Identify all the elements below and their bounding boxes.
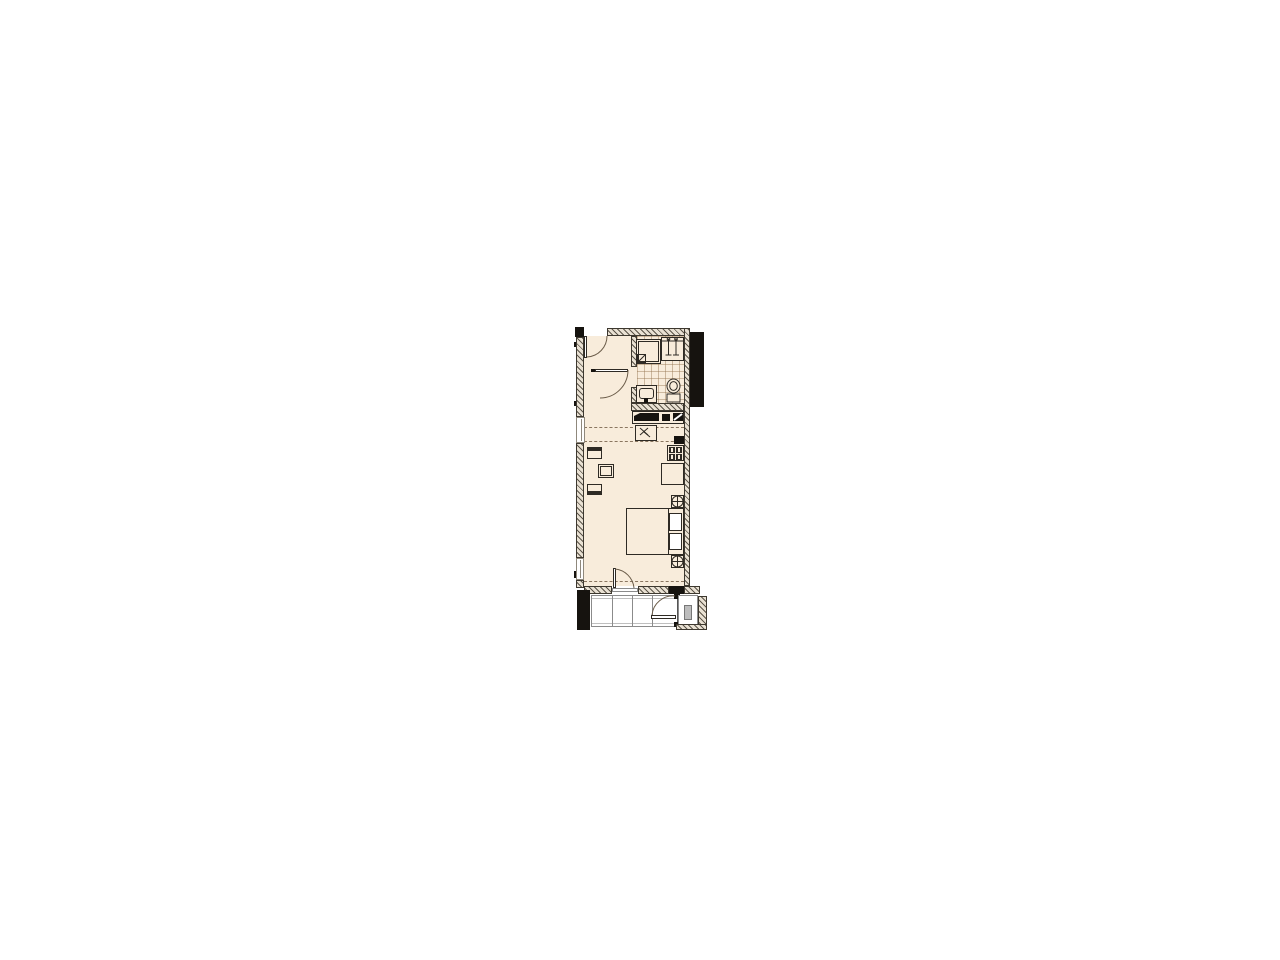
service-duct [632, 411, 684, 424]
floor-plan [574, 324, 708, 636]
utility-box [684, 605, 692, 620]
burner-2 [676, 447, 682, 453]
dashed-line-window-wall [584, 581, 684, 582]
wall-left-lower [576, 580, 584, 588]
balcony-door-threshold [612, 588, 638, 592]
burner-4 [676, 454, 682, 460]
dim-tick-upper [574, 342, 576, 347]
shower-drain [637, 354, 646, 363]
page-canvas: { "meta": { "title": "Studio apartment f… [0, 0, 1280, 960]
chair-bottom [587, 484, 602, 495]
kitchen-black-unit [674, 436, 684, 444]
balcony-rail-line-bottom [592, 623, 678, 624]
wall-top [607, 328, 690, 336]
wall-left-upper [576, 337, 584, 417]
dim-tick-window2 [574, 571, 576, 578]
dashed-line-kitchen-lower [584, 441, 684, 442]
circle-cross-symbol-bottom [671, 555, 684, 568]
balcony-rail-line-top [592, 598, 678, 599]
bathroom-wall-bottom [631, 403, 684, 411]
wardrobe [661, 337, 684, 361]
chair-top [587, 447, 602, 459]
pillow-top [669, 513, 682, 531]
balcony-pier-left [577, 590, 590, 630]
balcony-outer-door-leaf [651, 615, 676, 619]
dashed-line-kitchen-upper [584, 427, 684, 428]
wall-bottom-black [669, 586, 684, 594]
burner-3 [669, 454, 675, 460]
dim-tick-lower [574, 401, 576, 406]
balcony-panel-divider-2 [632, 596, 633, 626]
entrance-door-leaf [584, 336, 587, 358]
balcony-wall-bottom-right [676, 624, 707, 630]
circle-cross-symbol-top [671, 495, 684, 508]
dining-table-inner [600, 466, 612, 476]
interior-door-leaf [595, 369, 628, 372]
wall-bottom-middle [638, 586, 669, 594]
wall-corner-top-left [575, 327, 584, 337]
kitchen-counter [661, 463, 684, 485]
balcony-door-leaf [613, 568, 616, 588]
pillow-bottom [669, 533, 682, 550]
neighbor-block-right [690, 332, 704, 407]
burner-1 [669, 447, 675, 453]
sink-unit [635, 425, 657, 441]
wall-left-middle [576, 443, 584, 558]
wall-bottom-right [684, 586, 700, 594]
window-left-lower [576, 558, 584, 580]
balcony-panel-divider-3 [652, 596, 653, 626]
window-left-upper [576, 417, 585, 443]
balcony-panel-divider-1 [612, 596, 613, 626]
washbasin-tap [644, 398, 648, 403]
